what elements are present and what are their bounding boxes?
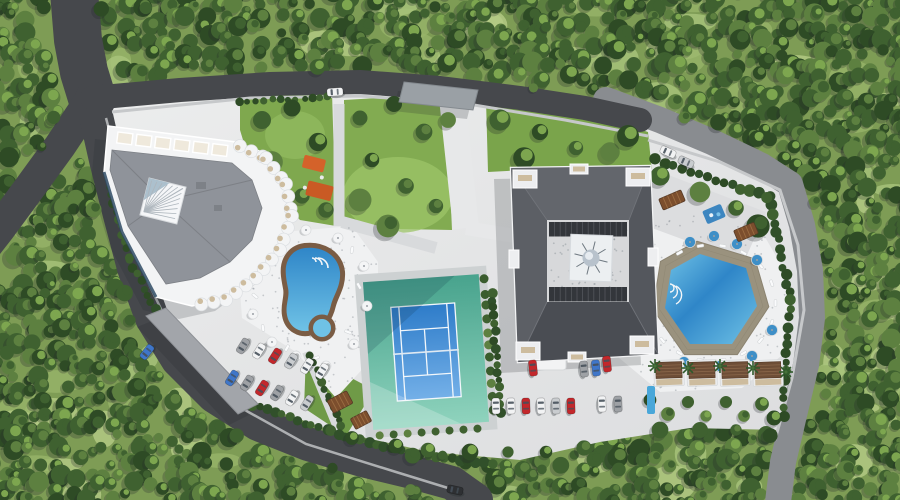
balcony-cell: [174, 139, 190, 152]
cabana-pool: [647, 386, 655, 414]
balcony-cell: [212, 144, 228, 157]
balcony-cell: [136, 134, 152, 147]
palm-tree: [681, 361, 695, 375]
sun-lounger: [774, 300, 777, 307]
palm-tree: [779, 365, 793, 379]
palm-tree: [746, 361, 760, 375]
cabana: [720, 359, 751, 386]
balcony-cell: [155, 137, 171, 150]
balcony-cell: [117, 132, 133, 145]
tennis-court: [354, 265, 499, 440]
palm-tree: [648, 359, 662, 373]
palm-tree: [713, 359, 727, 373]
aerial-site-render: [0, 0, 900, 500]
tennis-court-group: [354, 265, 499, 440]
right-building: [509, 164, 658, 362]
dome-tower: [569, 234, 613, 281]
site-plan-canvas: [0, 0, 900, 500]
kids-pool: [313, 319, 331, 337]
cabana: [687, 359, 718, 386]
balcony-cell: [193, 141, 209, 154]
